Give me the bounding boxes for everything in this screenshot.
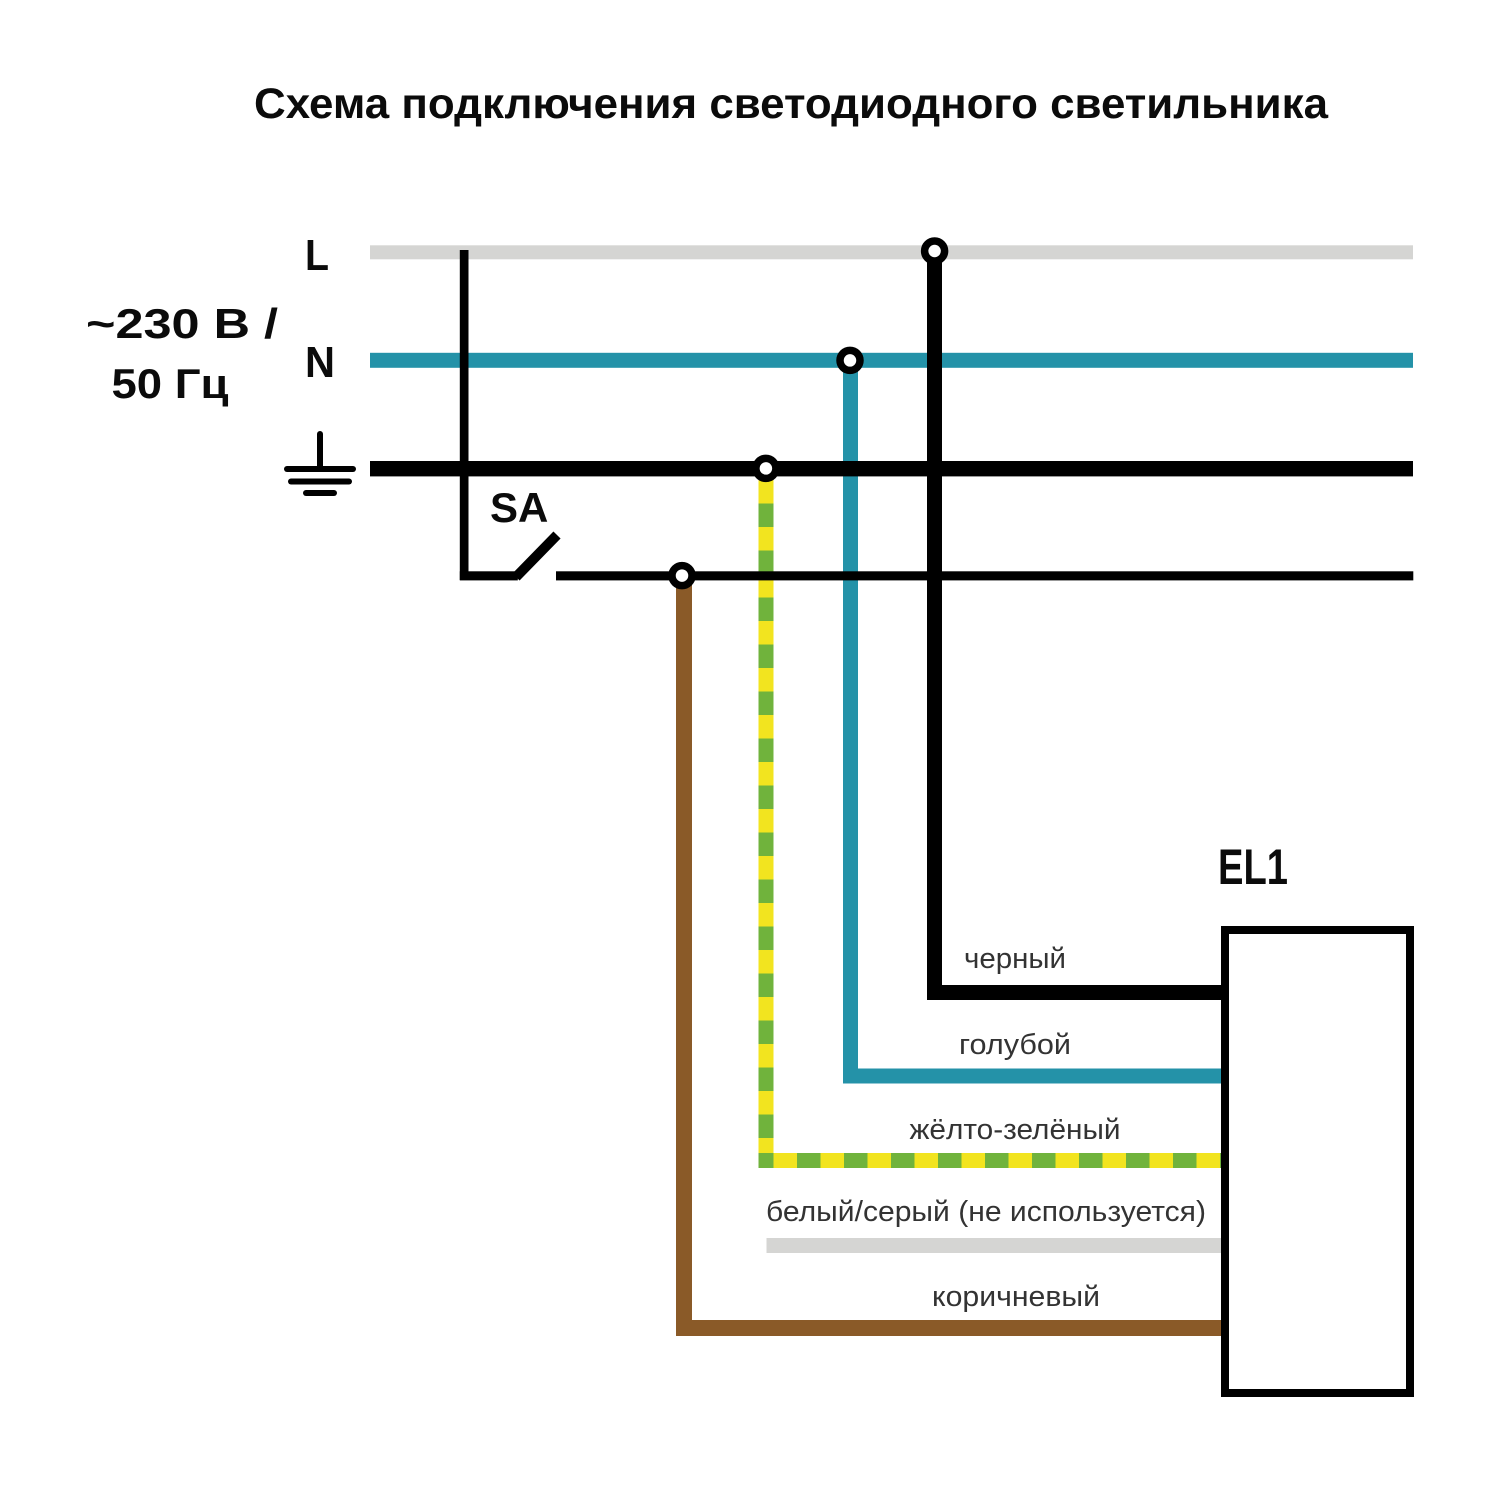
svg-text:N: N xyxy=(305,338,335,387)
svg-text:50 Гц: 50 Гц xyxy=(112,360,229,407)
svg-text:черный: черный xyxy=(964,943,1066,975)
svg-text:EL1: EL1 xyxy=(1218,839,1288,895)
svg-text:Схема подключения светодиодног: Схема подключения светодиодного светильн… xyxy=(254,80,1329,128)
svg-text:коричневый: коричневый xyxy=(932,1281,1100,1313)
svg-text:жёлто-зелёный: жёлто-зелёный xyxy=(910,1114,1121,1146)
svg-text:белый/серый (не используется): белый/серый (не используется) xyxy=(766,1196,1206,1228)
svg-text:L: L xyxy=(305,231,329,280)
svg-text:голубой: голубой xyxy=(959,1029,1071,1061)
svg-text:SA: SA xyxy=(490,484,548,531)
svg-text:~230 В /: ~230 В / xyxy=(86,300,278,347)
